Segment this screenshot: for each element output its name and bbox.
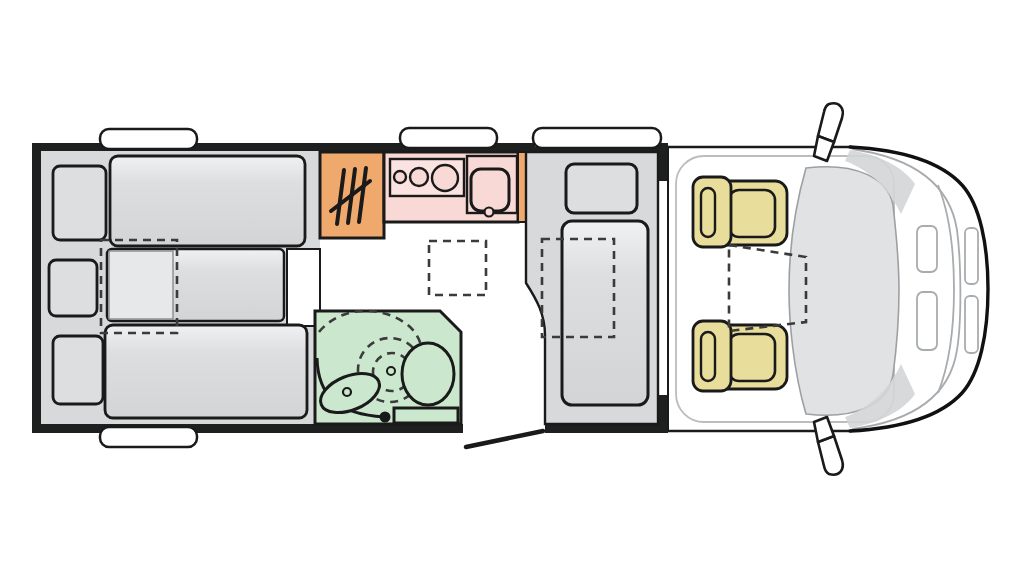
- window-rear-bottom: [100, 427, 197, 447]
- window-kitchen-top: [400, 128, 497, 148]
- habitation-area: [32, 128, 668, 447]
- hob-burner-medium: [410, 168, 428, 186]
- cab-seat-driver: [693, 321, 787, 391]
- bench-seat: [562, 221, 648, 405]
- mirror-top: [814, 103, 843, 161]
- cab-zone: [668, 103, 988, 474]
- walkway-table-dashed: [429, 241, 486, 295]
- basin-pivot-dot: [380, 412, 391, 423]
- bedroom-zone: [41, 151, 320, 424]
- floorplan-canvas: [0, 0, 1024, 576]
- window-bench-top: [533, 128, 661, 148]
- sink-bowl: [471, 169, 509, 211]
- window-rear-top: [100, 129, 197, 149]
- washbasin-drain: [343, 388, 351, 396]
- wall-stub-bottom-right: [658, 395, 668, 433]
- bed-top-pillow: [53, 166, 106, 240]
- kitchen-zone: [320, 152, 527, 238]
- bed-bottom-pillow: [53, 336, 103, 404]
- bench-headrest: [566, 164, 637, 213]
- grille-vent-bottom: [917, 292, 937, 350]
- wall-stub-top-right: [658, 143, 668, 181]
- headlight-top: [965, 228, 978, 284]
- bed-top-mattress: [110, 156, 305, 246]
- grille-vent-top: [917, 226, 937, 272]
- shower-pivot: [387, 367, 395, 375]
- headlight-bottom: [965, 296, 978, 353]
- toilet-base: [394, 408, 458, 423]
- bed-bottom-mattress: [105, 325, 307, 418]
- motorhome-floorplan: [0, 0, 1024, 576]
- bed-middle-cushion-light: [109, 251, 173, 319]
- entry-door-open: [466, 431, 543, 447]
- mirror-bottom: [814, 417, 843, 475]
- toilet-bowl: [402, 343, 454, 405]
- mirror-top-arm: [814, 136, 834, 161]
- wall-left: [32, 143, 41, 433]
- cab-seat-passenger: [693, 177, 787, 247]
- hob-burner-small: [394, 171, 406, 183]
- bathroom-zone: [315, 311, 461, 424]
- bed-middle-pillow: [49, 260, 97, 316]
- hob-burner-large: [432, 165, 458, 191]
- sink-drain: [485, 208, 494, 217]
- wall-bottom-right: [545, 424, 668, 433]
- windshield: [789, 167, 899, 416]
- hood-line-front: [938, 185, 954, 393]
- mirror-bottom-arm: [814, 417, 834, 442]
- bench-zone: [526, 152, 658, 424]
